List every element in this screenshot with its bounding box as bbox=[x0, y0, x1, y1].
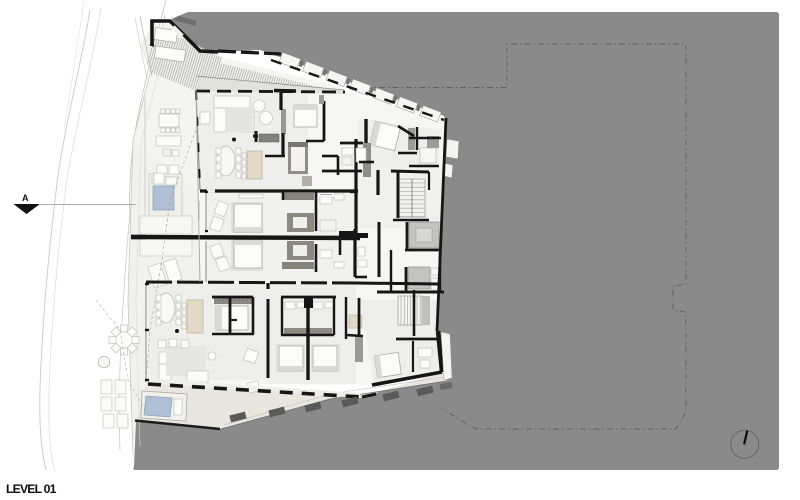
svg-text:A: A bbox=[22, 193, 29, 203]
svg-text:LEVEL 01: LEVEL 01 bbox=[6, 482, 57, 496]
